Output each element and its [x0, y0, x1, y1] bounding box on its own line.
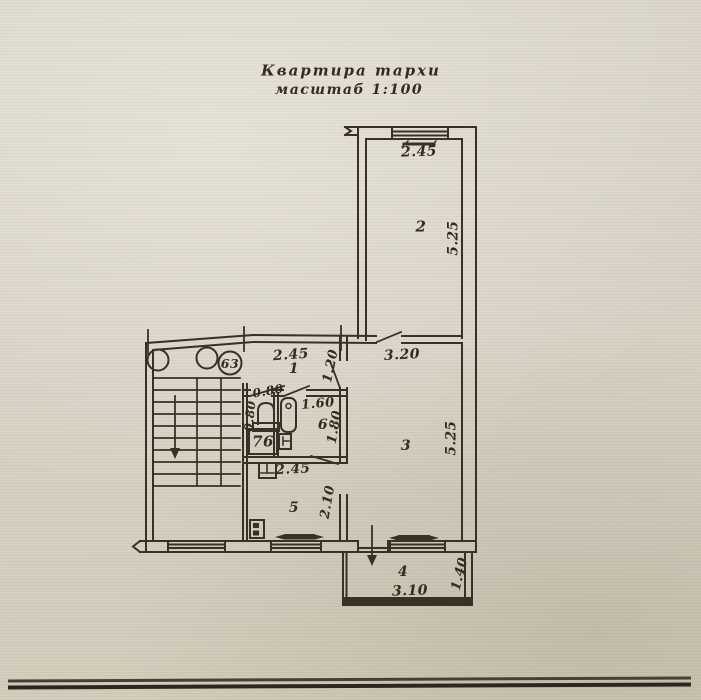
balcony-entry-arrow — [367, 555, 377, 566]
room2-walls — [345, 127, 476, 552]
dim-kitchen-width: 2.45 — [275, 462, 311, 477]
dim-room2-depth: 5.25 — [447, 221, 461, 256]
bottom-exterior-wall — [133, 534, 476, 552]
room-label-3: 3 — [401, 439, 411, 453]
room-label-1: 1 — [289, 362, 299, 376]
dim-wc-width: 0.80 — [242, 400, 257, 432]
floor-plan-linework — [0, 0, 701, 700]
dim-room3-depth: 5.25 — [445, 421, 459, 456]
dim-room3-width: 3.20 — [384, 347, 421, 363]
kitchen — [250, 463, 276, 538]
vent-marker-room3 — [389, 535, 439, 541]
plan-scale: масштаб 1:100 — [275, 83, 423, 97]
stairs-direction-arrow — [170, 448, 180, 459]
dim-balcony-width: 3.10 — [392, 583, 429, 598]
floor-plan-photo: Квартира тархи масштаб 1:100 2.45 2 5.25… — [0, 0, 701, 700]
dim-room2-width: 2.45 — [401, 144, 438, 159]
room-label-2: 2 — [416, 220, 427, 235]
apartment-number-badge: 63 — [221, 358, 239, 371]
room-label-5: 5 — [289, 501, 299, 515]
bath-door-leaf — [284, 386, 309, 396]
wc-box-label: 76 — [252, 435, 274, 450]
room-label-4: 4 — [398, 565, 408, 579]
vent-marker-kitchen — [275, 534, 324, 540]
stairwell — [146, 343, 242, 552]
plan-title: Квартира тархи — [261, 64, 441, 79]
